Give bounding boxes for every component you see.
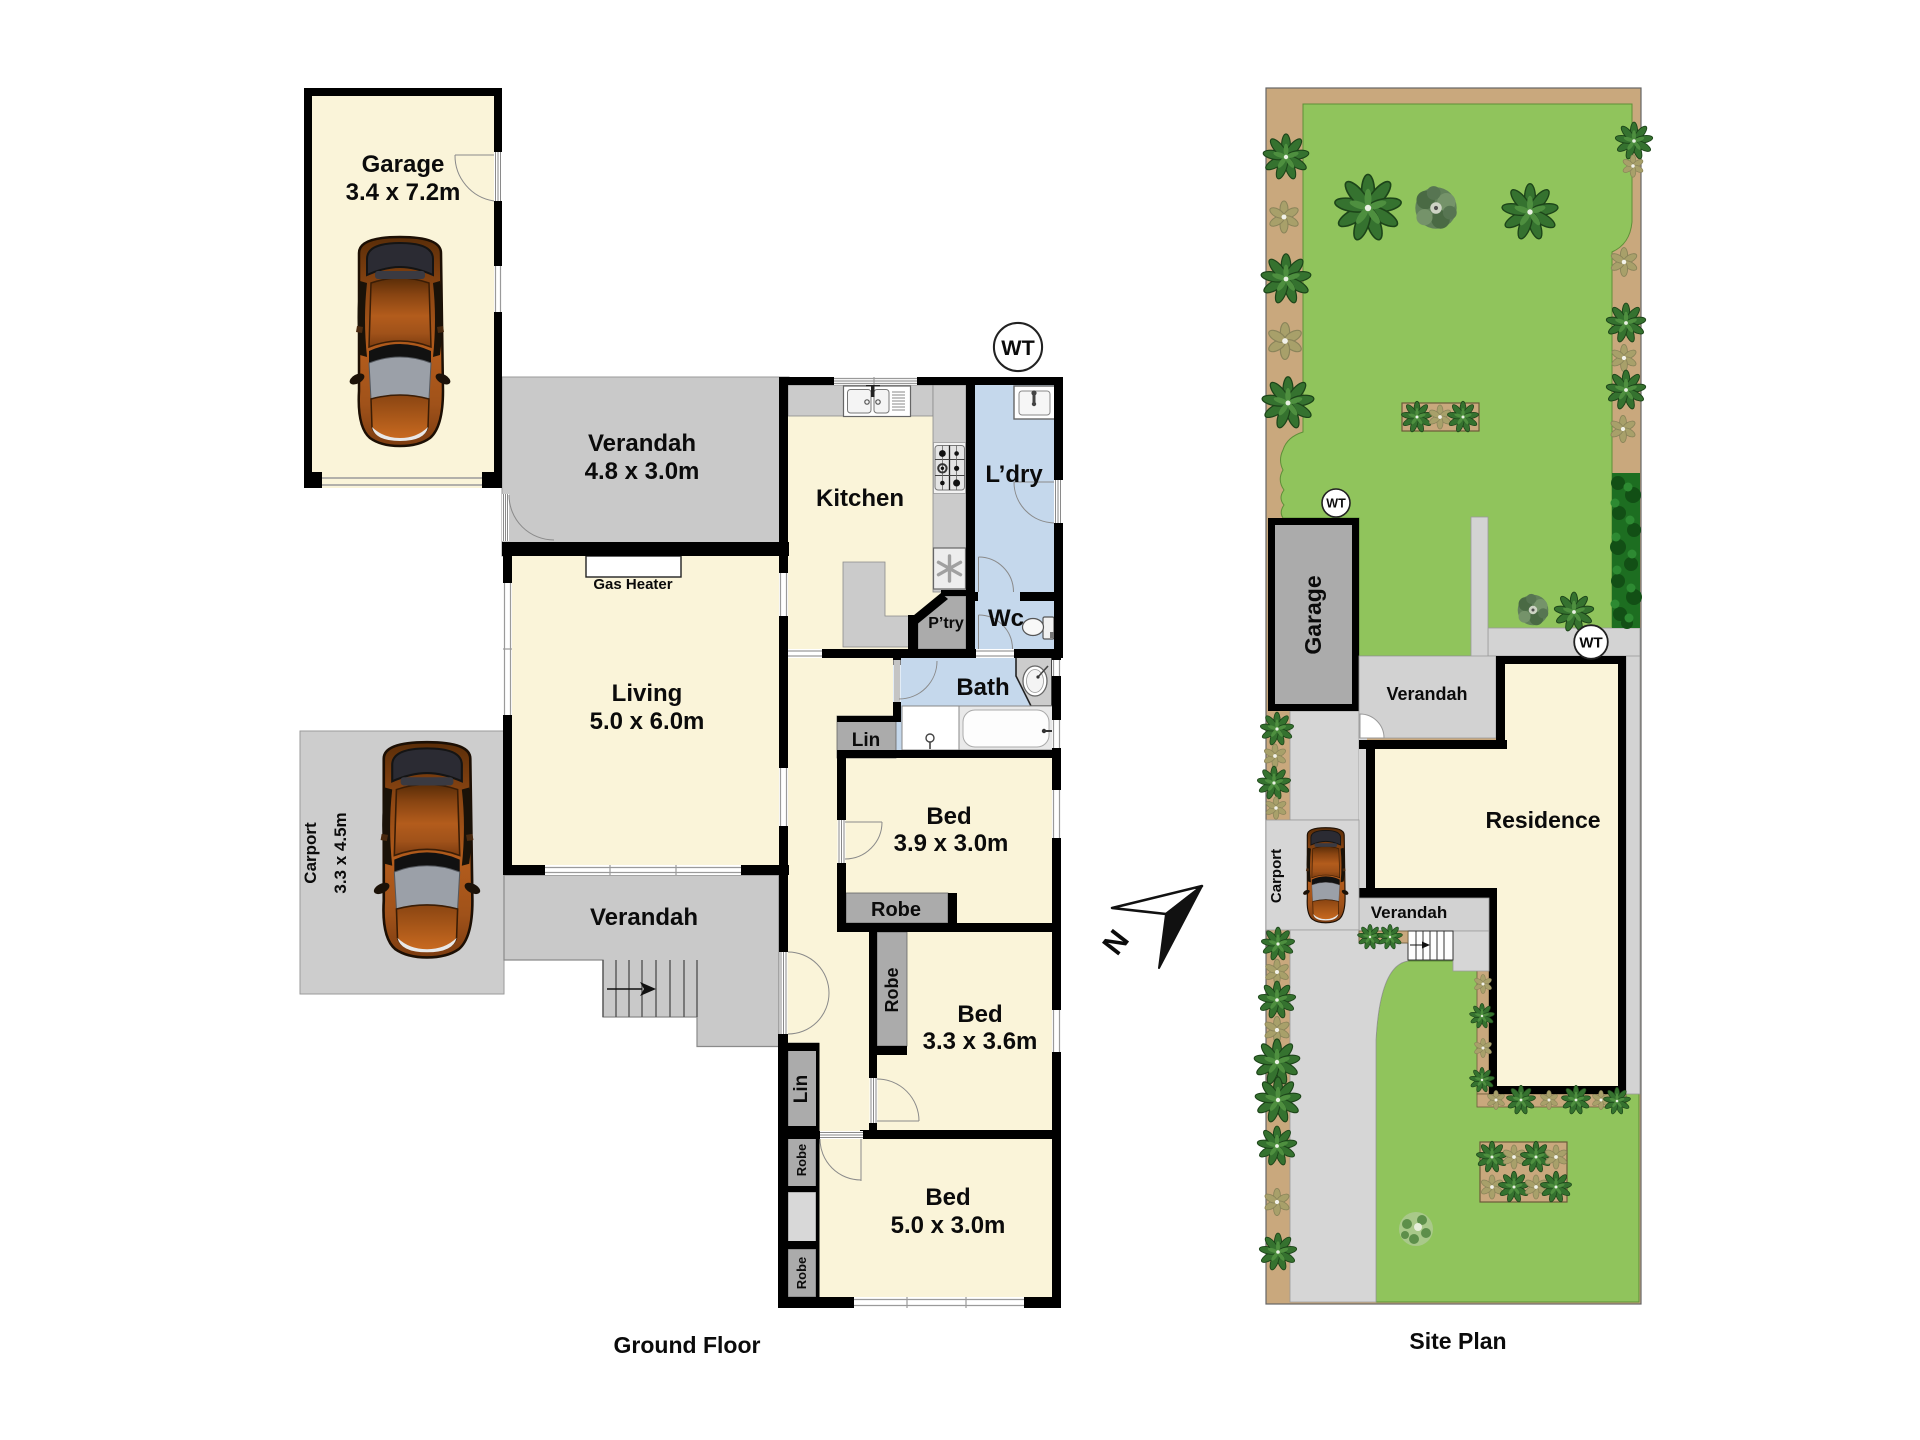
svg-text:Bed: Bed: [957, 1001, 1002, 1028]
svg-text:Ground Floor: Ground Floor: [614, 1332, 761, 1358]
svg-text:Bath: Bath: [956, 674, 1009, 701]
svg-text:Robe: Robe: [794, 1257, 809, 1290]
svg-text:WT: WT: [1001, 336, 1034, 360]
svg-text:3.3 x 3.6m: 3.3 x 3.6m: [923, 1028, 1038, 1055]
svg-text:Lin: Lin: [791, 1075, 812, 1104]
svg-text:Kitchen: Kitchen: [816, 485, 904, 512]
svg-text:Carport: Carport: [1268, 849, 1285, 903]
svg-text:Garage: Garage: [362, 151, 445, 178]
svg-text:Carport: Carport: [301, 822, 320, 884]
svg-text:Site Plan: Site Plan: [1409, 1328, 1506, 1354]
svg-text:Lin: Lin: [852, 730, 881, 751]
svg-text:Robe: Robe: [794, 1144, 809, 1177]
svg-text:Robe: Robe: [871, 899, 921, 921]
svg-text:3.9 x 3.0m: 3.9 x 3.0m: [894, 830, 1009, 857]
svg-text:Living: Living: [612, 680, 683, 707]
svg-text:P’try: P’try: [928, 615, 964, 632]
svg-text:N: N: [1097, 924, 1136, 961]
svg-text:Bed: Bed: [926, 803, 971, 830]
svg-text:Verandah: Verandah: [590, 904, 698, 931]
svg-text:5.0 x 3.0m: 5.0 x 3.0m: [891, 1212, 1006, 1239]
svg-text:3.4 x 7.2m: 3.4 x 7.2m: [346, 179, 461, 206]
svg-text:Wc: Wc: [988, 605, 1024, 632]
svg-text:Verandah: Verandah: [588, 430, 696, 457]
svg-text:Garage: Garage: [1300, 575, 1326, 654]
svg-text:WT: WT: [1579, 634, 1602, 651]
svg-text:Robe: Robe: [882, 968, 902, 1013]
svg-text:Verandah: Verandah: [1371, 903, 1448, 922]
svg-text:L’dry: L’dry: [985, 461, 1043, 488]
svg-text:Bed: Bed: [925, 1184, 970, 1211]
svg-text:5.0 x 6.0m: 5.0 x 6.0m: [590, 708, 705, 735]
svg-text:4.8 x 3.0m: 4.8 x 3.0m: [585, 458, 700, 485]
svg-text:Residence: Residence: [1485, 807, 1600, 833]
svg-text:Gas Heater: Gas Heater: [593, 576, 672, 593]
svg-text:Verandah: Verandah: [1386, 684, 1467, 704]
svg-text:3.3 x 4.5m: 3.3 x 4.5m: [331, 812, 350, 893]
